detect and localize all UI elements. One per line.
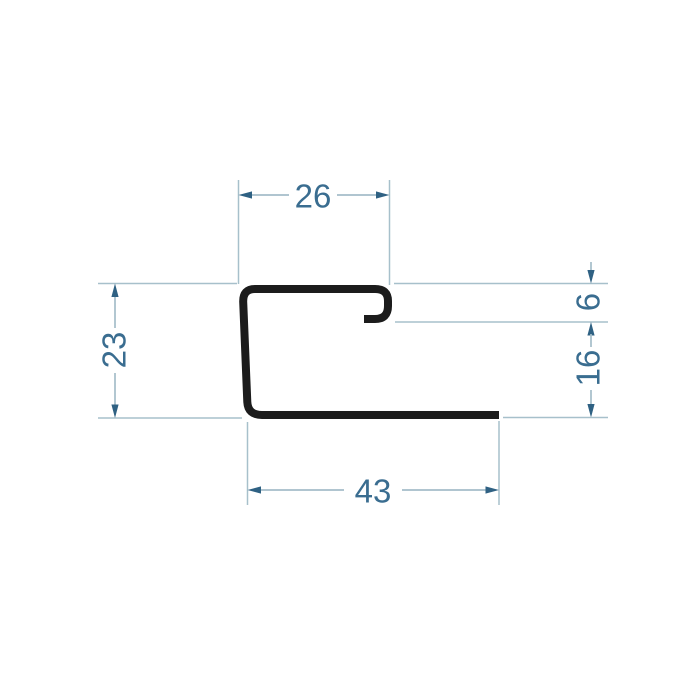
arrowhead-down-icon [587, 270, 594, 284]
arrowhead-left-icon [239, 191, 253, 198]
arrowhead-up-icon [587, 322, 594, 336]
arrowhead-left-icon [248, 486, 262, 493]
profile-outline [243, 289, 499, 415]
arrowhead-down-icon [587, 404, 594, 418]
dimension-value-bottom-width: 43 [355, 473, 392, 510]
dimension-value-top-width: 26 [295, 178, 332, 215]
dimension-value-hook-depth: 6 [570, 293, 607, 311]
profile-drawing-svg: 26 23 6 16 [0, 0, 700, 700]
arrowhead-right-icon [376, 191, 390, 198]
technical-drawing-canvas: 26 23 6 16 [0, 0, 700, 700]
dimension-bottom-width: 43 [248, 421, 500, 510]
arrowhead-right-icon [486, 486, 500, 493]
dimension-hook-depth: 6 [394, 262, 608, 322]
arrowhead-down-icon [111, 405, 118, 419]
dimension-overall-height: 23 [96, 284, 243, 419]
dimension-value-overall-height: 23 [96, 332, 133, 369]
arrowhead-up-icon [111, 284, 118, 298]
dimension-lower-right-height: 16 [503, 322, 608, 418]
dimension-value-lower-right-height: 16 [570, 350, 607, 387]
dimension-top-width: 26 [239, 178, 390, 286]
